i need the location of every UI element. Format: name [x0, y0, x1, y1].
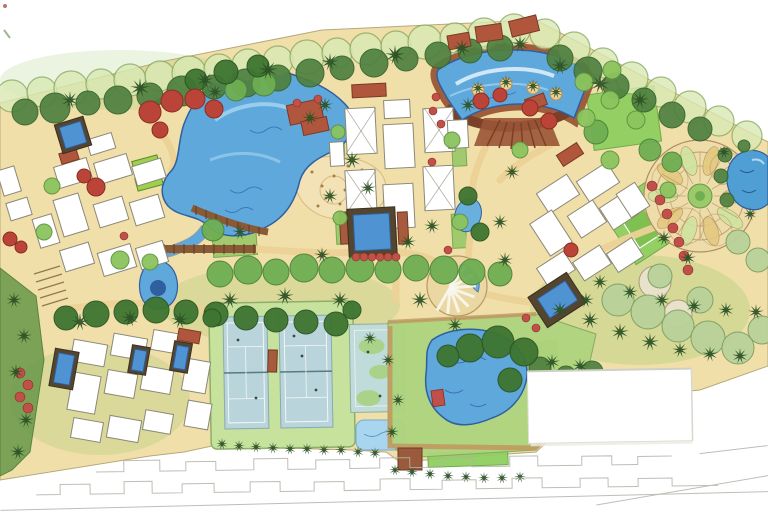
- red-bush-dots-item: [392, 253, 400, 261]
- boundary-dark-trees-item: [720, 193, 734, 207]
- red-flower-trees-item: [564, 243, 578, 257]
- beach-dots-item: [347, 165, 350, 168]
- canopy-bright-item: [627, 111, 645, 129]
- red-bush-dots-item: [655, 195, 665, 205]
- canopy-mid-item: [207, 261, 233, 287]
- canopy-mid-item: [319, 257, 345, 283]
- canopy-mid-item: [662, 152, 682, 172]
- canopy-dark-item: [437, 345, 459, 367]
- site-plan-canvas: [0, 0, 768, 512]
- red-flower-trees-item: [185, 89, 205, 109]
- canopy-dark-item: [510, 338, 538, 366]
- beach-dots-item: [321, 185, 324, 188]
- canopy-bright-item: [444, 132, 460, 148]
- buildings-terracotta-item: [475, 23, 503, 42]
- canopy-dark-item: [456, 334, 484, 362]
- canopy-dark-item: [214, 60, 238, 84]
- red-flower-trees-item: [77, 169, 91, 183]
- canopy-pale-item: [726, 230, 750, 254]
- red-bush-dots-item: [23, 380, 33, 390]
- pavilions-item: [268, 350, 278, 372]
- red-bush-dots-item: [444, 246, 452, 254]
- canopy-mid-item: [202, 219, 224, 241]
- red-bush-dots-item: [352, 253, 360, 261]
- canopy-pale-item: [602, 284, 634, 316]
- red-flower-trees-item: [139, 101, 161, 123]
- red-flower-trees-item: [3, 232, 17, 246]
- canopy-dark-item: [482, 326, 514, 358]
- canopy-pale-item: [648, 264, 672, 288]
- canopy-dark-item: [471, 223, 489, 241]
- boundary-dark-trees-item: [360, 49, 388, 77]
- pavilions-item: [397, 212, 409, 244]
- garden-planter: [431, 389, 445, 407]
- canopy-bright-item: [44, 178, 60, 194]
- canopy-pale-item: [662, 310, 694, 342]
- buildings-white-item: [329, 142, 344, 167]
- red-bush-dots-item: [23, 403, 33, 413]
- canopy-dark-item: [83, 301, 109, 327]
- buildings-white-item: [384, 99, 411, 118]
- beach-dots-item: [333, 175, 336, 178]
- red-bush-dots-item: [522, 314, 530, 322]
- court-dots-item: [255, 397, 258, 400]
- canopy-dark-item: [203, 309, 221, 327]
- beach-dots-item: [339, 203, 342, 206]
- canopy-bright-item: [601, 151, 619, 169]
- boundary-dark-trees-item: [76, 91, 100, 115]
- red-bush-dots-item: [668, 223, 678, 233]
- buildings-white-item: [383, 123, 415, 169]
- canopy-dark-item: [459, 187, 477, 205]
- boundary-dark-trees-item: [688, 117, 712, 141]
- buildings-white-item: [104, 370, 138, 399]
- court-dots-item: [315, 389, 318, 392]
- red-bush-dots-item: [674, 237, 684, 247]
- boundary-dark-trees-item: [330, 56, 354, 80]
- boundary-dark-trees-item: [714, 169, 728, 183]
- canopy-dark-item: [54, 306, 78, 330]
- red-bush-dots-item: [662, 209, 672, 219]
- buildings-white-item: [184, 400, 212, 430]
- canopy-pale-item: [691, 321, 725, 355]
- canopy-mid-item: [639, 139, 661, 161]
- canopy-dark-item: [234, 306, 258, 330]
- canopy-bright-item: [577, 109, 595, 127]
- red-bush-dots-item: [432, 93, 440, 101]
- canopy-dark-item: [247, 55, 269, 77]
- boundary-dark-trees-item: [659, 102, 685, 128]
- canopy-bright-item: [512, 142, 528, 158]
- canopy-mid-item: [488, 262, 512, 286]
- red-bush-dots-item: [15, 392, 25, 402]
- court-dots-item: [301, 355, 304, 358]
- red-bush-dots-item: [683, 265, 693, 275]
- boundary-dark-trees-item: [12, 99, 38, 125]
- canopy-bright-item: [331, 125, 345, 139]
- red-flower-trees-item: [541, 113, 557, 129]
- red-flower-trees-item: [522, 100, 538, 116]
- buildings-white-item: [142, 410, 173, 435]
- red-flower-trees-item: [152, 122, 168, 138]
- canopy-mid-item: [234, 256, 262, 284]
- court-dots-item: [379, 395, 382, 398]
- red-flower-trees-item: [493, 88, 507, 102]
- boundary-dark-trees-item: [40, 93, 70, 123]
- canopy-mid-item: [430, 256, 458, 284]
- canopy-pale-item: [687, 287, 713, 313]
- canopy-bright-item: [601, 91, 619, 109]
- canopy-bright-item: [575, 73, 593, 91]
- canopy-mid-item: [263, 259, 289, 285]
- boundary-dark-trees-item: [296, 59, 324, 87]
- canopy-bright-item: [36, 224, 52, 240]
- boundary-dark-trees-item: [394, 47, 418, 71]
- corner-mark: [3, 4, 7, 8]
- beach-dots-item: [311, 171, 314, 174]
- boundary-dark-trees-item: [104, 86, 132, 114]
- red-bush-dots-item: [429, 107, 437, 115]
- white-coverup-box: [527, 369, 692, 447]
- red-bush-dots-item: [376, 253, 384, 261]
- red-flower-trees-item: [15, 241, 27, 253]
- boundary-dark-trees-item: [632, 88, 656, 112]
- canopy-pale-item: [746, 248, 768, 272]
- red-flower-trees-item: [161, 90, 183, 112]
- red-flower-trees-item: [473, 93, 489, 109]
- red-bush-dots-item: [368, 253, 376, 261]
- red-bush-dots-item: [314, 95, 322, 103]
- red-bush-dots-item: [384, 253, 392, 261]
- canopy-dark-item: [343, 301, 361, 319]
- canopy-mid-item: [403, 255, 429, 281]
- red-bush-dots-item: [120, 232, 128, 240]
- red-bush-dots-item: [360, 253, 368, 261]
- red-bush-dots-item: [647, 181, 657, 191]
- canopy-dark-item: [264, 308, 288, 332]
- red-flower-trees-item: [205, 100, 223, 118]
- canopy-dark-item: [143, 297, 169, 323]
- resort-master-plan: [0, 0, 768, 512]
- pool-water-rects-item: [353, 213, 391, 251]
- court-dots-item: [293, 335, 296, 338]
- court-dots-item: [367, 351, 370, 354]
- red-bush-dots-item: [532, 324, 540, 332]
- red-bush-dots-item: [293, 99, 301, 107]
- beach-dots-item: [317, 205, 320, 208]
- canopy-mid-item: [290, 254, 318, 282]
- canopy-bright-item: [142, 254, 158, 270]
- canopy-bright-item: [111, 251, 129, 269]
- boundary-dark-trees-item: [738, 140, 750, 152]
- canopy-bright-item: [452, 214, 468, 230]
- boundary-dark-trees-item: [425, 42, 451, 68]
- canopy-bright-item: [603, 61, 621, 79]
- court-dots-item: [237, 339, 240, 342]
- canopy-mid-item: [459, 259, 485, 285]
- canopy-dark-item: [498, 368, 522, 392]
- red-bush-dots-item: [428, 158, 436, 166]
- red-bush-dots-item: [437, 120, 445, 128]
- canopy-bright-item: [333, 211, 347, 225]
- canopy-dark-item: [294, 310, 318, 334]
- buildings-terracotta-item: [352, 83, 387, 98]
